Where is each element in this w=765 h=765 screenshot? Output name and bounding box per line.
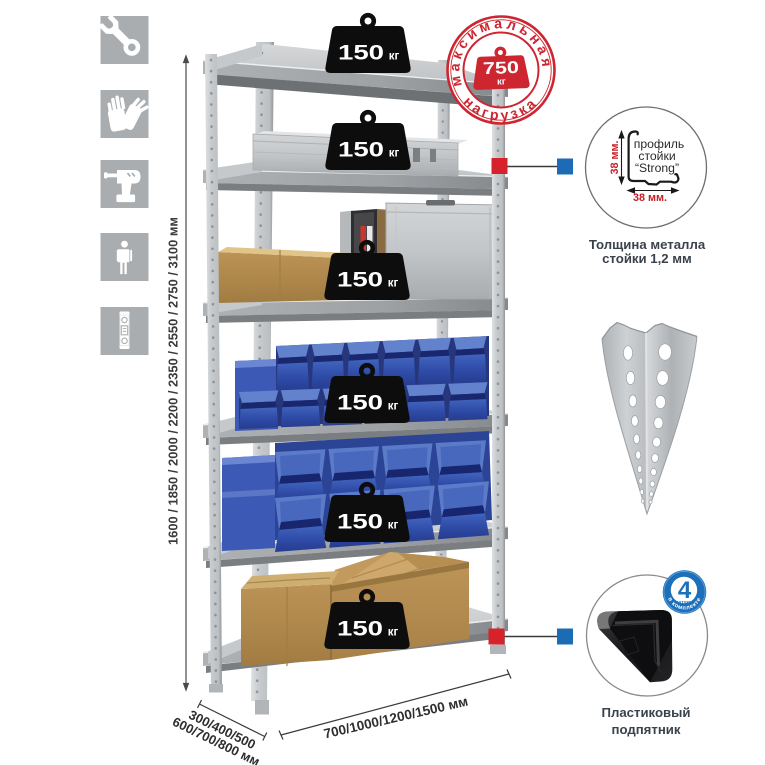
- svg-text:Пластиковый: Пластиковый: [601, 705, 690, 720]
- svg-text:Толщина металла: Толщина металла: [589, 237, 706, 252]
- svg-text:150: 150: [337, 268, 383, 292]
- svg-text:стойки 1,2 мм: стойки 1,2 мм: [602, 251, 692, 266]
- svg-text:1600 / 1850 / 2000 / 2200 / 23: 1600 / 1850 / 2000 / 2200 / 2350 / 2550 …: [165, 217, 180, 545]
- svg-text:750: 750: [483, 58, 520, 78]
- svg-text:подпятник: подпятник: [611, 722, 680, 737]
- svg-text:кг: кг: [389, 148, 400, 160]
- svg-text:150: 150: [338, 138, 384, 162]
- svg-text:кг: кг: [497, 76, 506, 87]
- svg-text:кг: кг: [388, 627, 399, 639]
- svg-text:150: 150: [337, 617, 383, 641]
- svg-text:кг: кг: [388, 401, 399, 413]
- svg-text:кг: кг: [388, 520, 399, 532]
- svg-text:38 мм.: 38 мм.: [633, 192, 667, 204]
- svg-text:кг: кг: [388, 278, 399, 290]
- svg-text:38 мм.: 38 мм.: [609, 141, 621, 175]
- svg-text:150: 150: [338, 41, 384, 65]
- svg-text:кг: кг: [389, 51, 400, 63]
- svg-text:“Strong”: “Strong”: [635, 161, 679, 175]
- svg-text:150: 150: [337, 510, 383, 534]
- svg-text:150: 150: [337, 391, 383, 415]
